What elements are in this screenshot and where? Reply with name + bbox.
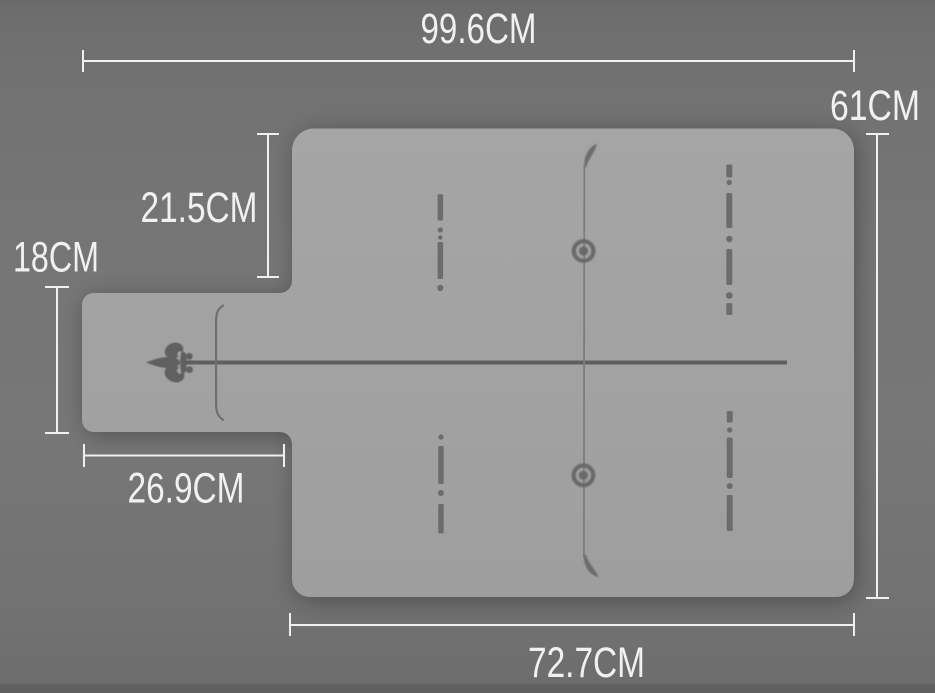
svg-text:72.7CM: 72.7CM (528, 639, 645, 687)
svg-text:99.6CM: 99.6CM (421, 5, 537, 53)
svg-text:21.5CM: 21.5CM (141, 184, 258, 232)
svg-text:18CM: 18CM (13, 234, 99, 282)
svg-text:26.9CM: 26.9CM (128, 465, 245, 513)
svg-text:61CM: 61CM (830, 82, 920, 130)
